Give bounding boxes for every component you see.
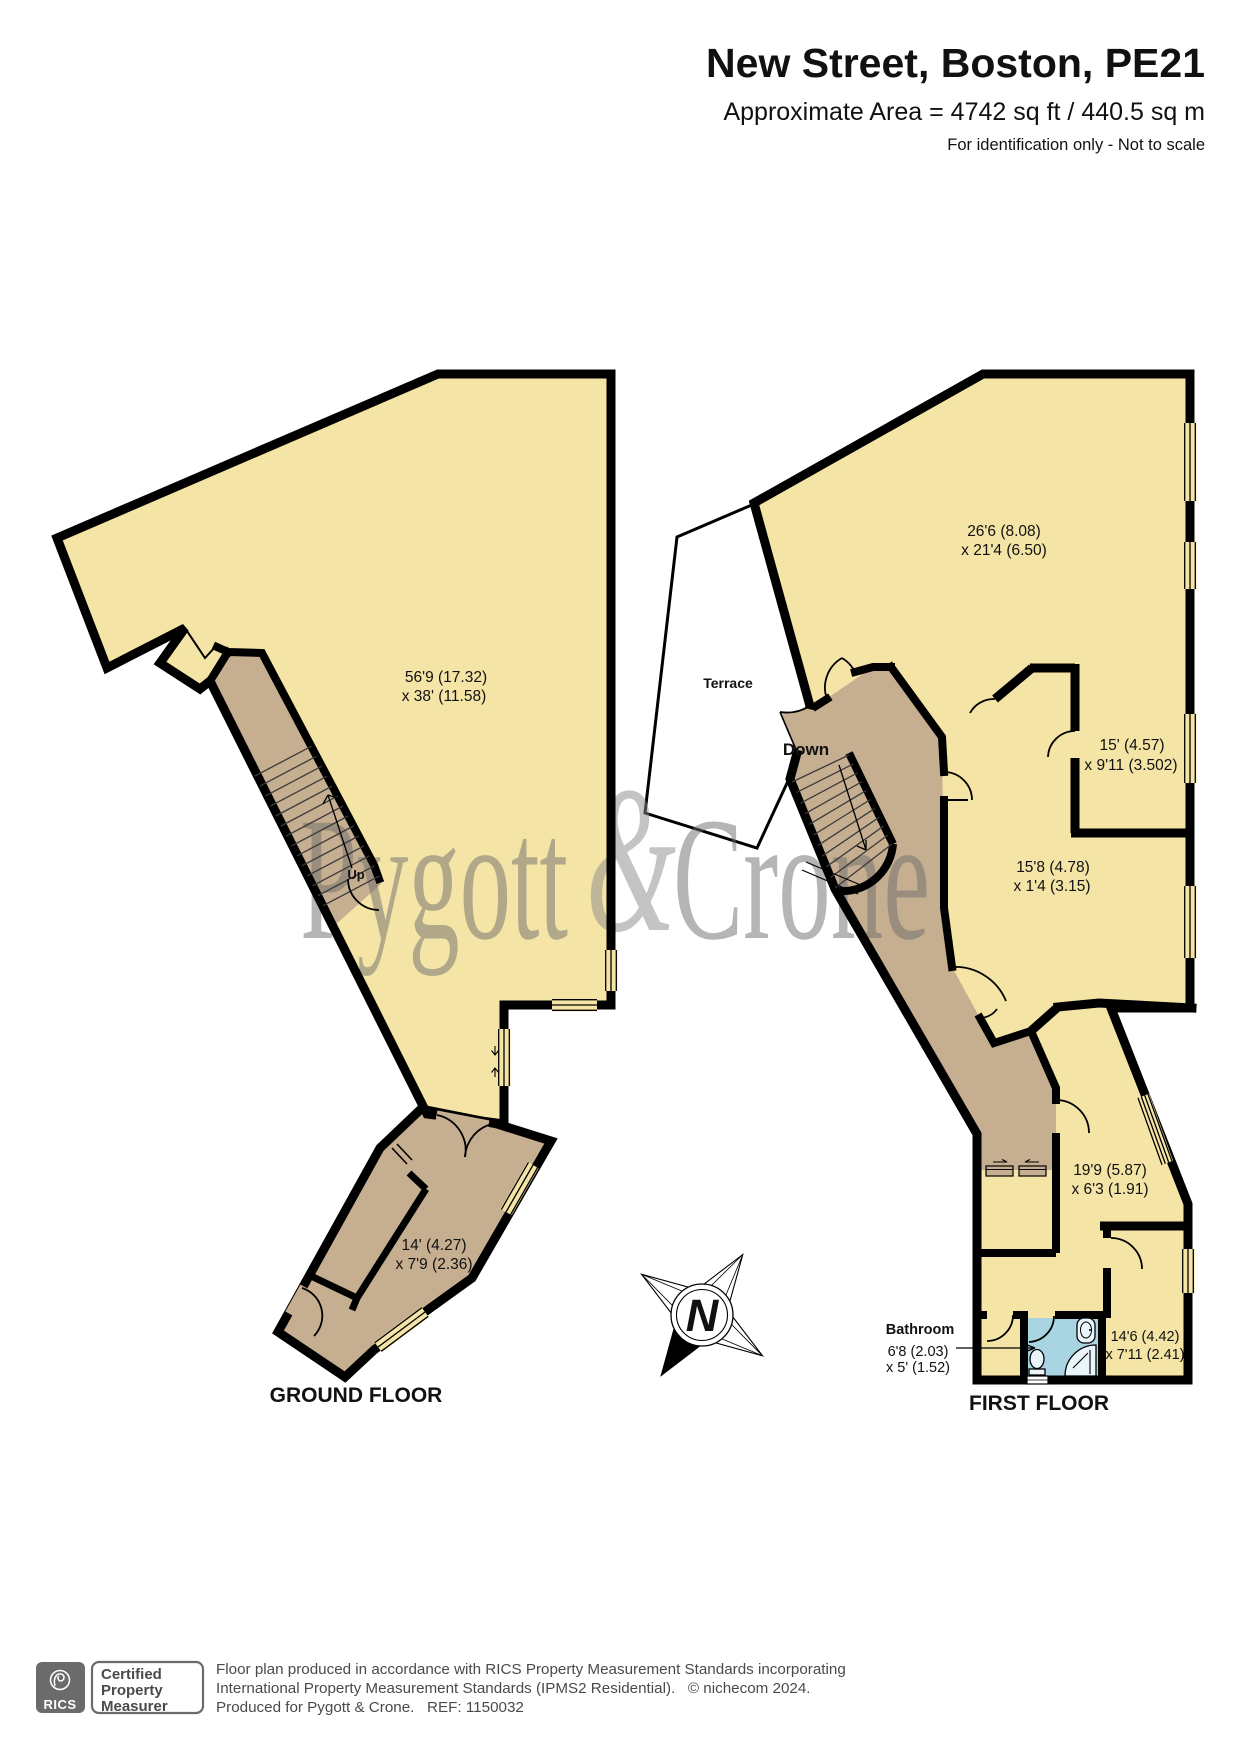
svg-text:N: N <box>686 1290 720 1341</box>
svg-text:14'6 (4.42): 14'6 (4.42) <box>1111 1329 1180 1345</box>
svg-text:26'6 (8.08): 26'6 (8.08) <box>967 523 1041 540</box>
svg-text:Bathroom: Bathroom <box>886 1322 954 1338</box>
svg-text:GROUND FLOOR: GROUND FLOOR <box>270 1384 443 1407</box>
svg-text:Approximate Area = 4742 sq ft: Approximate Area = 4742 sq ft / 440.5 sq… <box>723 98 1205 126</box>
svg-text:Floor plan produced in accorda: Floor plan produced in accordance with R… <box>216 1661 846 1678</box>
svg-text:x 1'4 (3.15): x 1'4 (3.15) <box>1013 878 1090 895</box>
svg-text:New Street, Boston, PE21: New Street, Boston, PE21 <box>706 40 1205 86</box>
svg-text:x 6'3 (1.91): x 6'3 (1.91) <box>1071 1181 1148 1198</box>
svg-text:Down: Down <box>783 740 829 759</box>
svg-text:6'8 (2.03): 6'8 (2.03) <box>888 1344 949 1360</box>
svg-text:Produced for Pygott & Crone.: Produced for Pygott & Crone. REF: 115003… <box>216 1699 524 1716</box>
svg-text:&: & <box>586 744 676 976</box>
svg-text:Up: Up <box>347 867 364 882</box>
svg-text:x 5' (1.52): x 5' (1.52) <box>886 1360 950 1376</box>
svg-text:15'8 (4.78): 15'8 (4.78) <box>1016 859 1090 876</box>
svg-text:Certified: Certified <box>101 1666 162 1683</box>
svg-text:FIRST FLOOR: FIRST FLOOR <box>969 1392 1109 1415</box>
svg-text:15' (4.57): 15' (4.57) <box>1100 737 1165 754</box>
svg-text:Property: Property <box>101 1682 163 1699</box>
svg-text:Terrace: Terrace <box>703 675 753 691</box>
svg-text:x 7'9 (2.36): x 7'9 (2.36) <box>395 1256 472 1273</box>
svg-text:International Property Measure: International Property Measurement Stand… <box>216 1680 811 1697</box>
svg-text:x 9'11 (3.502): x 9'11 (3.502) <box>1084 757 1177 774</box>
svg-text:Measurer: Measurer <box>101 1698 168 1715</box>
svg-text:x 38' (11.58): x 38' (11.58) <box>402 688 487 705</box>
svg-text:For identification only - Not: For identification only - Not to scale <box>947 136 1205 154</box>
svg-text:x 7'11 (2.41): x 7'11 (2.41) <box>1105 1347 1184 1363</box>
svg-text:14' (4.27): 14' (4.27) <box>402 1237 467 1254</box>
svg-text:x 21'4 (6.50): x 21'4 (6.50) <box>961 542 1047 559</box>
svg-text:19'9 (5.87): 19'9 (5.87) <box>1073 1162 1147 1179</box>
svg-text:56'9 (17.32): 56'9 (17.32) <box>405 669 487 686</box>
svg-text:RICS: RICS <box>43 1697 76 1712</box>
